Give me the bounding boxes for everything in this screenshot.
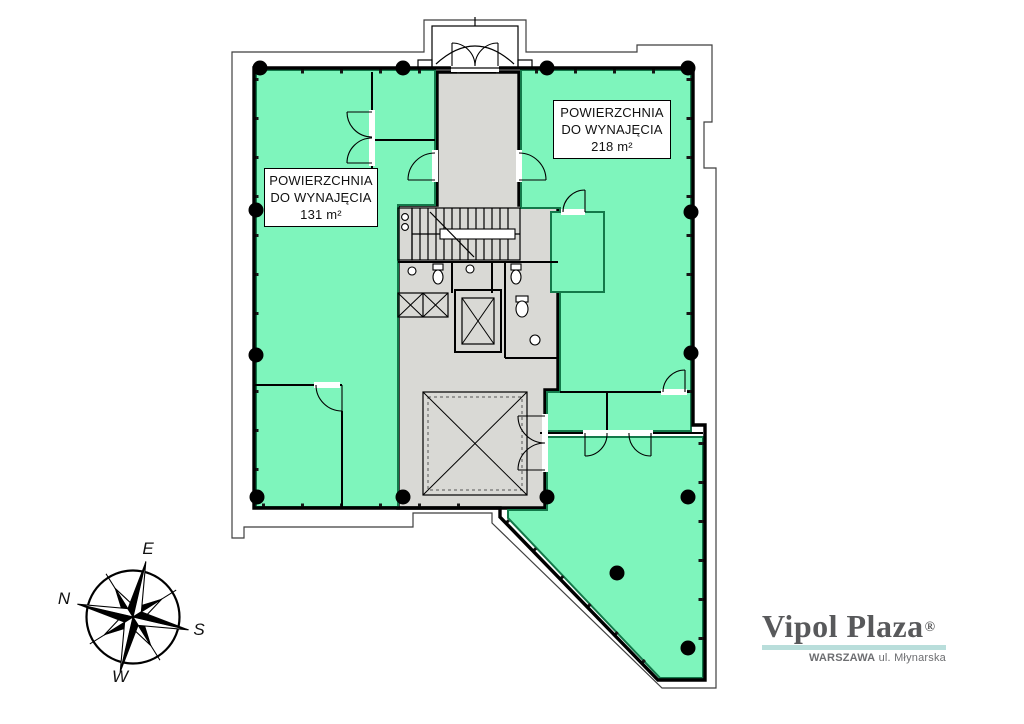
area-label-218-line1: POWIERZCHNIA <box>560 105 664 120</box>
area-label-131-size: 131 m² <box>300 207 342 222</box>
area-label-131-line1: POWIERZCHNIA <box>269 173 373 188</box>
compass-label-n: N <box>58 589 70 609</box>
compass-label-w: W <box>112 667 128 687</box>
registered-mark-icon: ® <box>925 620 935 635</box>
logo-name: Vipol Plaza <box>762 608 924 644</box>
area-label-131: POWIERZCHNIA DO WYNAJĘCIA 131 m² <box>264 168 378 227</box>
vipol-logo: Vipol Plaza® WARSZAWA ul. Młynarska <box>762 611 952 664</box>
logo-subtitle-street: ul. Młynarska <box>879 652 946 664</box>
compass-label-s: S <box>193 620 204 640</box>
entrance-vestibule <box>418 17 532 68</box>
area-label-218-line2: DO WYNAJĘCIA <box>561 122 662 137</box>
compass-label-e: E <box>142 539 153 559</box>
area-label-218: POWIERZCHNIA DO WYNAJĘCIA 218 m² <box>553 100 671 159</box>
logo-subtitle-city: WARSZAWA <box>809 652 875 664</box>
area-label-131-line2: DO WYNAJĘCIA <box>270 190 371 205</box>
logo-underline <box>762 645 946 650</box>
floor-plan-page: POWIERZCHNIA DO WYNAJĘCIA 218 m² POWIERZ… <box>0 0 1024 724</box>
logo-subtitle: WARSZAWA ul. Młynarska <box>762 652 946 664</box>
small-office <box>551 212 604 292</box>
area-label-218-size: 218 m² <box>591 139 633 154</box>
compass-rose <box>65 549 202 686</box>
